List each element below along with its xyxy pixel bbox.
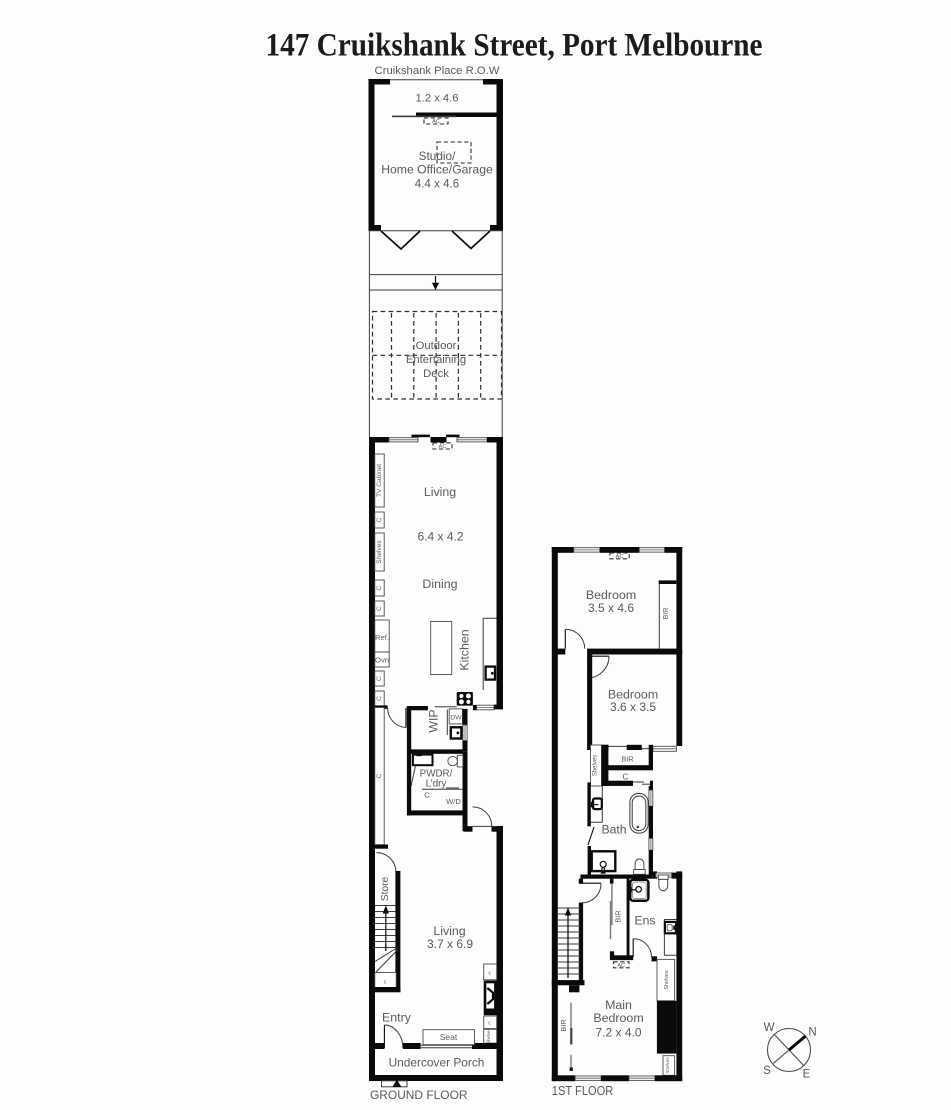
svg-text:W: W bbox=[764, 1022, 775, 1034]
svg-text:AC: AC bbox=[616, 554, 624, 560]
svg-text:TV Cabinet: TV Cabinet bbox=[376, 464, 383, 497]
svg-text:WIP: WIP bbox=[427, 709, 441, 732]
svg-text:C: C bbox=[376, 606, 383, 611]
svg-text:BIR: BIR bbox=[614, 910, 623, 922]
svg-text:Ref.: Ref. bbox=[375, 633, 389, 642]
svg-text:Ovn: Ovn bbox=[375, 656, 389, 665]
svg-text:Kitchen: Kitchen bbox=[458, 629, 472, 670]
svg-text:BIR: BIR bbox=[661, 608, 670, 620]
svg-text:Dining: Dining bbox=[422, 577, 457, 591]
svg-text:c: c bbox=[488, 1021, 491, 1027]
svg-text:Living: Living bbox=[424, 485, 456, 499]
svg-text:Bath: Bath bbox=[601, 823, 626, 837]
svg-text:C: C bbox=[376, 517, 383, 522]
svg-text:C: C bbox=[424, 791, 430, 800]
svg-text:DW: DW bbox=[450, 715, 462, 722]
svg-text:Store: Store bbox=[380, 876, 391, 901]
svg-text:6.4 x 4.2: 6.4 x 4.2 bbox=[417, 530, 463, 544]
svg-text:Ens: Ens bbox=[634, 914, 655, 928]
svg-text:Studio/: Studio/ bbox=[419, 149, 456, 163]
svg-text:GROUND FLOOR: GROUND FLOOR bbox=[370, 1088, 468, 1102]
svg-text:AC: AC bbox=[439, 444, 447, 450]
svg-text:AC: AC bbox=[432, 119, 440, 125]
svg-text:Shelves: Shelves bbox=[376, 540, 383, 564]
svg-text:7.2 x 4.0: 7.2 x 4.0 bbox=[595, 1026, 641, 1040]
svg-text:3.7 x 6.9: 3.7 x 6.9 bbox=[427, 937, 473, 951]
svg-text:Shelves: Shelves bbox=[665, 1057, 670, 1074]
svg-text:3.5 x 4.6: 3.5 x 4.6 bbox=[588, 601, 634, 615]
svg-text:C: C bbox=[376, 773, 383, 778]
svg-text:Entry: Entry bbox=[382, 1011, 412, 1025]
svg-text:C: C bbox=[376, 696, 383, 701]
svg-text:AC: AC bbox=[617, 963, 625, 969]
svg-text:BIR: BIR bbox=[621, 755, 633, 764]
svg-text:3.6 x 3.5: 3.6 x 3.5 bbox=[610, 700, 656, 714]
svg-text:Undercover Porch: Undercover Porch bbox=[389, 1056, 485, 1070]
svg-text:Shelves: Shelves bbox=[486, 1027, 491, 1043]
svg-text:c: c bbox=[489, 971, 492, 977]
svg-text:Shelves: Shelves bbox=[593, 755, 599, 776]
svg-text:C: C bbox=[623, 773, 629, 782]
svg-text:1.2 x 4.6: 1.2 x 4.6 bbox=[416, 93, 459, 105]
svg-text:BIR: BIR bbox=[559, 1019, 568, 1031]
svg-text:L’dry: L’dry bbox=[426, 779, 447, 790]
svg-text:Entertaining: Entertaining bbox=[406, 354, 466, 366]
svg-text:E: E bbox=[803, 1069, 811, 1081]
svg-text:147 Cruikshank Street, Port Me: 147 Cruikshank Street, Port Melbourne bbox=[266, 28, 763, 64]
svg-text:C: C bbox=[376, 676, 383, 681]
svg-text:N: N bbox=[808, 1027, 816, 1039]
svg-text:Main: Main bbox=[605, 998, 632, 1012]
svg-text:Home Office/Garage: Home Office/Garage bbox=[381, 163, 493, 177]
svg-text:Outdoor: Outdoor bbox=[416, 340, 457, 352]
svg-text:Deck: Deck bbox=[423, 368, 449, 380]
svg-text:Shelves: Shelves bbox=[664, 970, 670, 989]
svg-text:Seat: Seat bbox=[440, 1032, 458, 1042]
svg-text:S: S bbox=[763, 1065, 771, 1077]
svg-text:4.4 x 4.6: 4.4 x 4.6 bbox=[415, 178, 459, 191]
svg-text:Cruikshank Place R.O.W: Cruikshank Place R.O.W bbox=[375, 65, 500, 77]
svg-text:W/D: W/D bbox=[446, 797, 461, 806]
svg-text:C: C bbox=[376, 585, 383, 590]
svg-text:Bedroom: Bedroom bbox=[586, 588, 636, 602]
svg-text:1ST FLOOR: 1ST FLOOR bbox=[552, 1084, 614, 1098]
svg-text:c: c bbox=[384, 980, 387, 986]
svg-text:Bedroom: Bedroom bbox=[593, 1011, 643, 1025]
